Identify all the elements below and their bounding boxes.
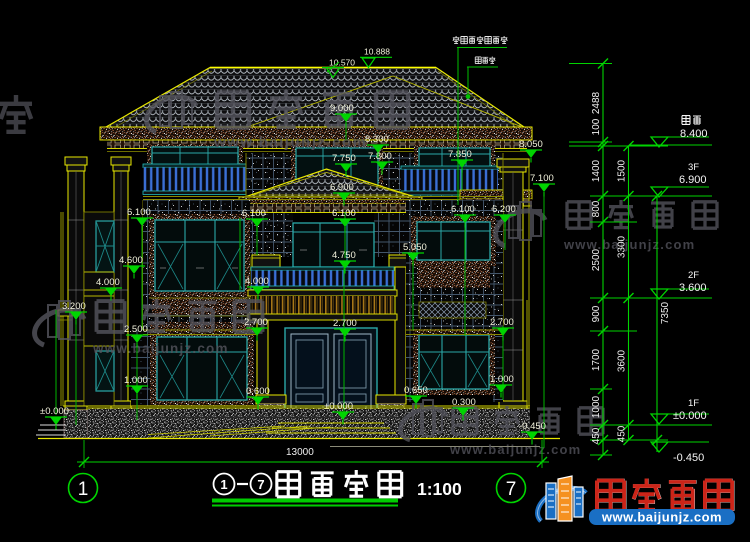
svg-text:6.100: 6.100 (242, 208, 266, 219)
svg-text:6.900: 6.900 (679, 174, 707, 186)
svg-text:7.850: 7.850 (448, 149, 472, 160)
svg-text:7.750: 7.750 (332, 153, 356, 164)
svg-text:4.000: 4.000 (96, 277, 120, 288)
svg-text:2.700: 2.700 (244, 317, 268, 328)
svg-text:-0.450: -0.450 (519, 421, 546, 432)
svg-text:www.baijunjz.com: www.baijunjz.com (92, 341, 229, 356)
svg-text:www.baijunjz.com: www.baijunjz.com (563, 237, 695, 252)
svg-text:1.000: 1.000 (490, 374, 514, 385)
svg-text:2.700: 2.700 (490, 317, 514, 328)
svg-text:8.050: 8.050 (519, 139, 543, 150)
svg-text:7.100: 7.100 (530, 173, 554, 184)
svg-text:8.400: 8.400 (680, 128, 708, 140)
svg-text:±0.000: ±0.000 (40, 406, 69, 417)
svg-text:1000: 1000 (591, 395, 602, 418)
svg-text:6.900: 6.900 (330, 182, 354, 193)
svg-text:1F: 1F (688, 398, 699, 409)
svg-text:±0.000: ±0.000 (673, 410, 707, 422)
svg-text:4.750: 4.750 (332, 250, 356, 261)
svg-text:3.600: 3.600 (679, 282, 707, 294)
svg-text:7.800: 7.800 (368, 151, 392, 162)
svg-text:5.050: 5.050 (403, 242, 427, 253)
svg-text:±0.000: ±0.000 (324, 401, 353, 412)
svg-text:7: 7 (257, 477, 264, 492)
svg-text:4.000: 4.000 (245, 276, 269, 287)
svg-text:3300: 3300 (617, 235, 628, 258)
svg-text:6.100: 6.100 (127, 207, 151, 218)
svg-text:3F: 3F (688, 162, 699, 173)
svg-text:100: 100 (591, 118, 602, 135)
svg-text:2.700: 2.700 (333, 318, 357, 329)
svg-text:10.570: 10.570 (329, 58, 355, 68)
svg-text:900: 900 (591, 305, 602, 322)
svg-text:1.000: 1.000 (124, 375, 148, 386)
svg-text:1: 1 (78, 479, 89, 500)
svg-text:8.300: 8.300 (365, 134, 389, 145)
svg-text:13000: 13000 (286, 447, 314, 458)
svg-text:450: 450 (617, 425, 628, 442)
svg-text:2.500: 2.500 (124, 324, 148, 335)
svg-text:800: 800 (591, 200, 602, 217)
svg-text:1700: 1700 (591, 348, 602, 371)
svg-text:2488: 2488 (591, 91, 602, 114)
svg-text:9.000: 9.000 (330, 103, 354, 114)
svg-text:3.200: 3.200 (62, 301, 86, 312)
svg-text:0.300: 0.300 (452, 397, 476, 408)
svg-text:450: 450 (591, 427, 602, 444)
svg-text:7: 7 (506, 479, 517, 500)
svg-text:-0.450: -0.450 (673, 452, 704, 464)
svg-text:0.650: 0.650 (404, 385, 428, 396)
svg-text:www.baijunjz.com: www.baijunjz.com (601, 510, 722, 525)
svg-text:10.888: 10.888 (364, 47, 390, 57)
svg-text:2500: 2500 (591, 248, 602, 271)
svg-text:www.baijunjz.com: www.baijunjz.com (449, 442, 581, 457)
svg-text:2F: 2F (688, 270, 699, 281)
svg-text:6.100: 6.100 (451, 204, 475, 215)
svg-text:1:100: 1:100 (417, 479, 462, 499)
svg-text:1500: 1500 (617, 159, 628, 182)
svg-text:4.600: 4.600 (119, 255, 143, 266)
svg-text:www.baijunjz.com: www.baijunjz.com (213, 134, 367, 151)
svg-text:6.200: 6.200 (492, 204, 516, 215)
svg-text:0.600: 0.600 (246, 386, 270, 397)
svg-text:6.100: 6.100 (332, 208, 356, 219)
svg-text:1: 1 (220, 477, 227, 492)
svg-text:3600: 3600 (617, 349, 628, 372)
svg-text:7350: 7350 (660, 301, 671, 324)
svg-text:1400: 1400 (591, 159, 602, 182)
